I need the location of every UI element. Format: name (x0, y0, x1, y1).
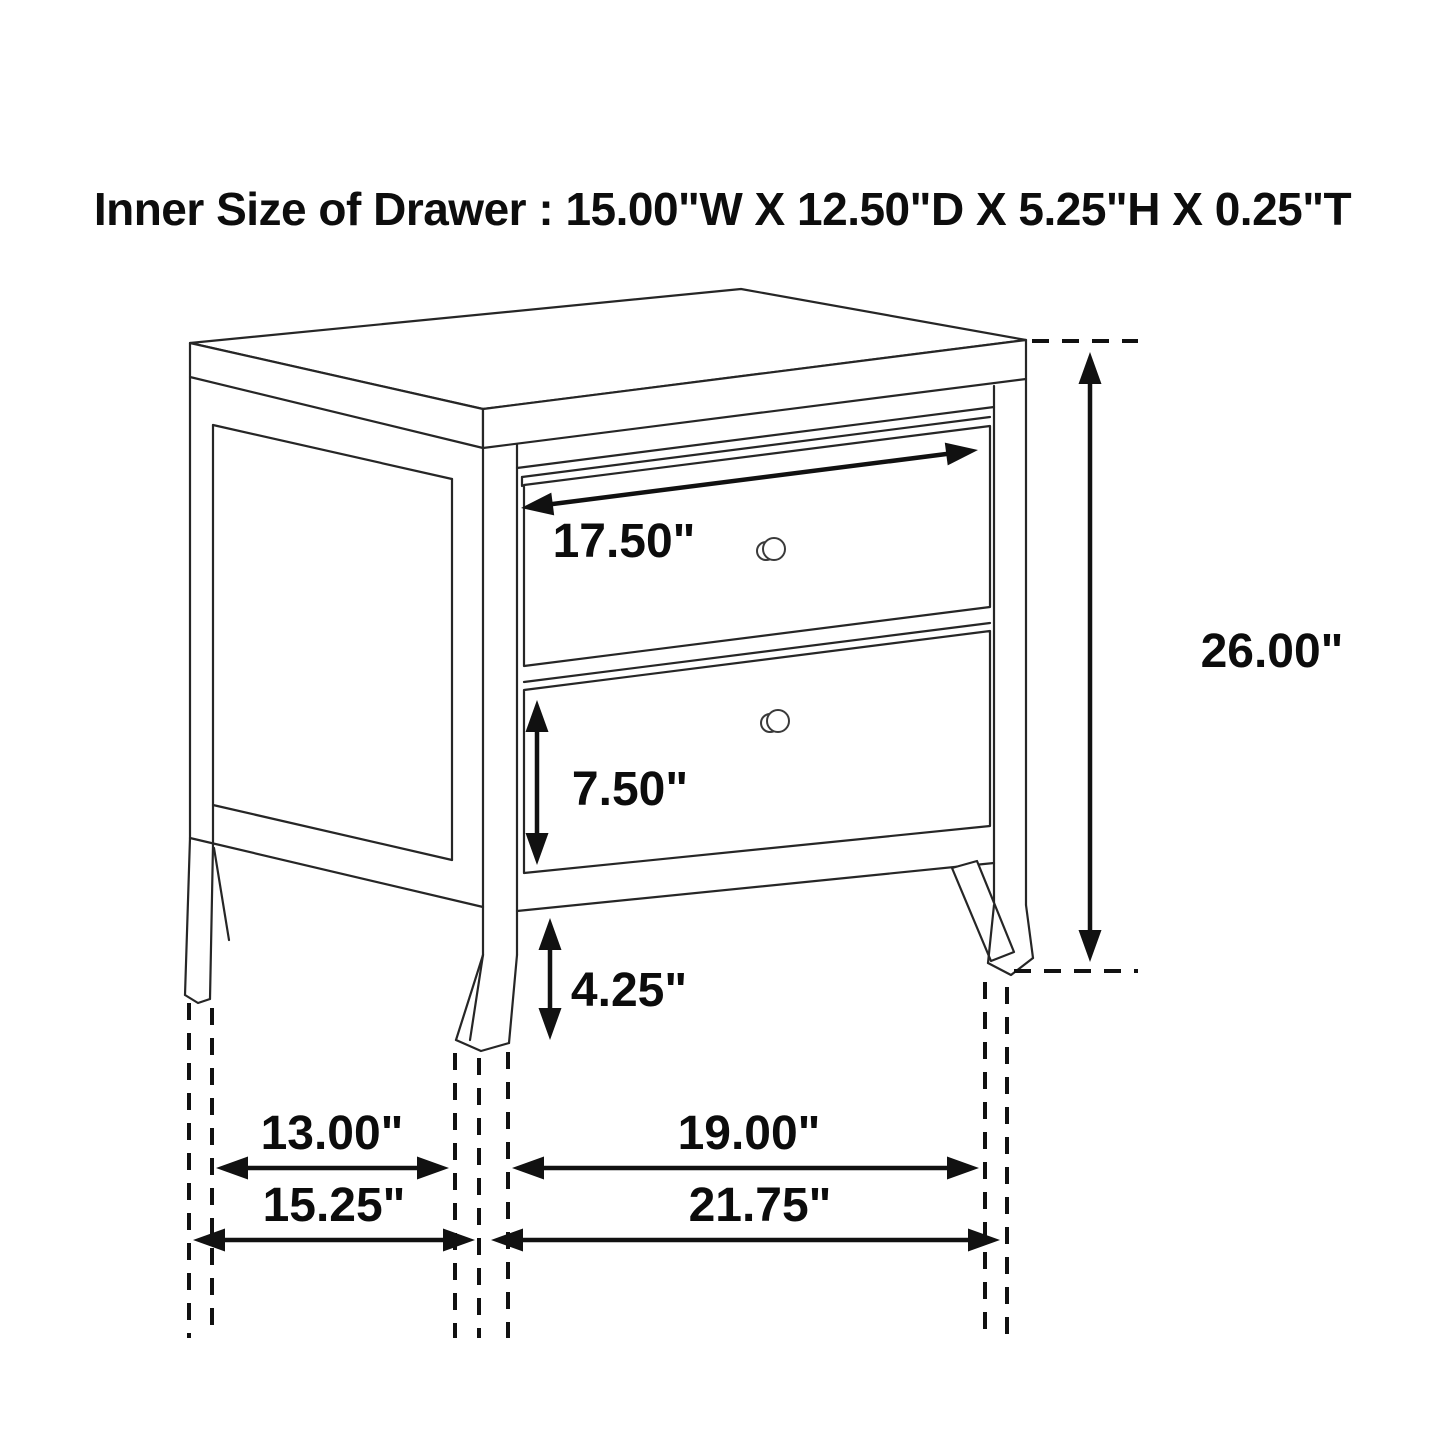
rear-right-leg (952, 861, 1014, 961)
dim-arrow-leg-clearance (539, 918, 562, 1040)
dim-label-front-leg-inner-span: 19.00" (678, 1107, 821, 1160)
knob-bottom (767, 710, 789, 732)
dim-label-bottom-drawer-height: 7.50" (572, 763, 688, 816)
nightstand (185, 289, 1033, 1051)
front-left-stile (483, 444, 517, 955)
dim-label-front-overall-width: 21.75" (689, 1179, 832, 1232)
left-side-panel (190, 377, 483, 907)
front-left-leg (456, 955, 517, 1051)
furniture-dimension-diagram: Inner Size of Drawer : 15.00"W X 12.50"D… (0, 0, 1445, 1445)
dim-arrow-overall-height (1079, 352, 1102, 962)
dim-label-drawer-front-width: 17.50" (553, 515, 696, 568)
dim-label-side-leg-inner-span: 13.00" (261, 1107, 404, 1160)
drawer-bottom (524, 631, 990, 873)
nightstand-drawing: 17.50" 26.00" 7.50" 4.25" 13.00" 19.00" … (0, 0, 1445, 1445)
dim-label-overall-height: 26.00" (1201, 625, 1344, 678)
dim-label-leg-clearance: 4.25" (571, 964, 687, 1017)
front-right-stile (994, 379, 1026, 905)
dim-label-side-overall-depth: 15.25" (263, 1179, 406, 1232)
rear-left-leg (185, 838, 229, 1003)
top-board (190, 289, 1026, 448)
knob-top (763, 538, 785, 560)
